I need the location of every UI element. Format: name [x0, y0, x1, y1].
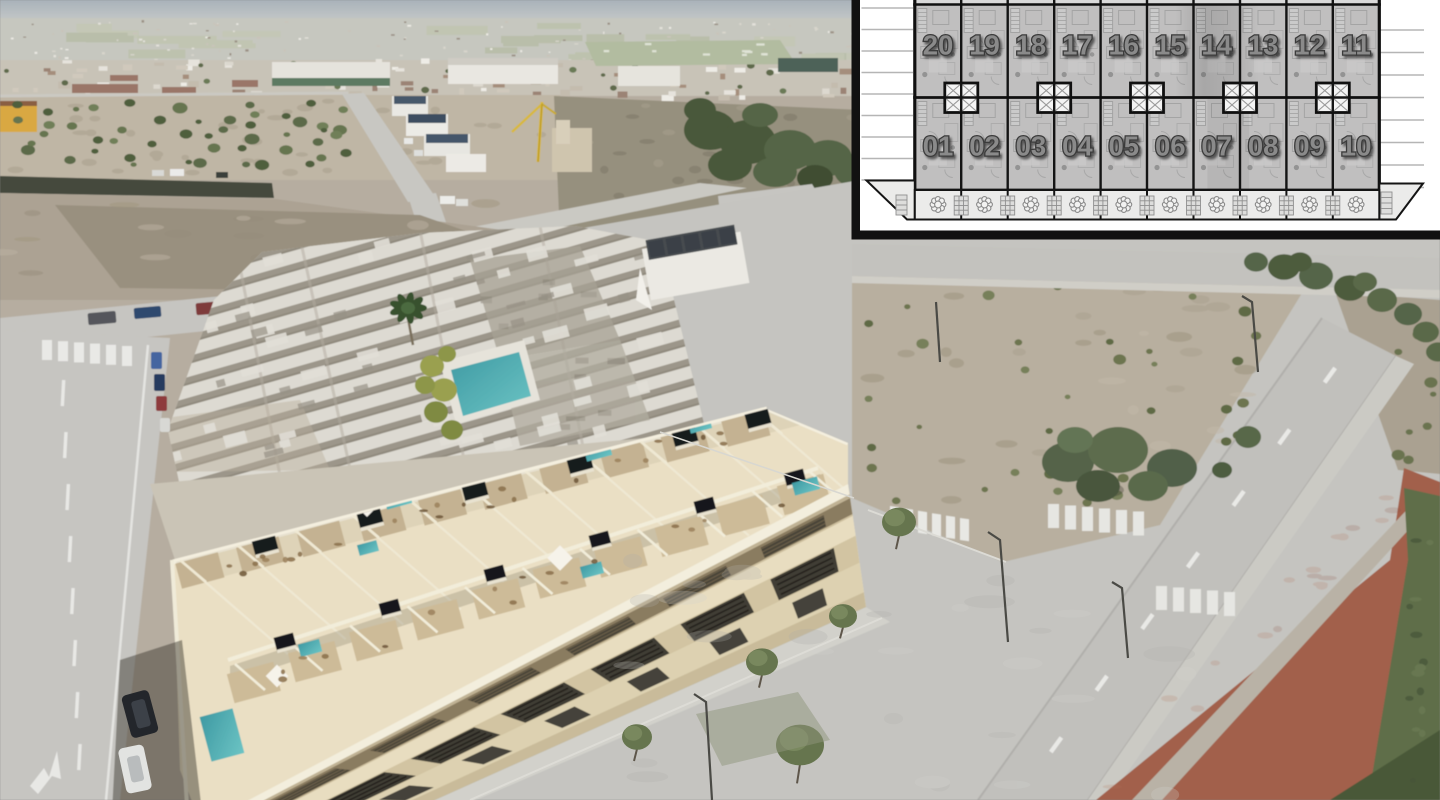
- svg-text:08: 08: [1248, 131, 1279, 162]
- svg-text:20: 20: [923, 30, 954, 61]
- svg-text:11: 11: [1342, 30, 1371, 61]
- svg-text:05: 05: [1109, 131, 1140, 162]
- svg-text:19: 19: [969, 30, 1000, 61]
- svg-text:01: 01: [923, 131, 954, 162]
- svg-text:18: 18: [1016, 30, 1047, 61]
- svg-text:06: 06: [1155, 131, 1186, 162]
- svg-text:10: 10: [1341, 131, 1372, 162]
- svg-text:07: 07: [1201, 131, 1232, 162]
- svg-text:12: 12: [1294, 30, 1325, 61]
- svg-text:09: 09: [1294, 131, 1325, 162]
- svg-text:02: 02: [969, 131, 1000, 162]
- svg-text:17: 17: [1062, 30, 1093, 61]
- svg-text:04: 04: [1062, 131, 1093, 162]
- svg-text:15: 15: [1155, 30, 1186, 61]
- svg-text:16: 16: [1109, 30, 1140, 61]
- svg-text:13: 13: [1248, 30, 1279, 61]
- svg-text:03: 03: [1016, 131, 1047, 162]
- svg-text:14: 14: [1201, 30, 1232, 61]
